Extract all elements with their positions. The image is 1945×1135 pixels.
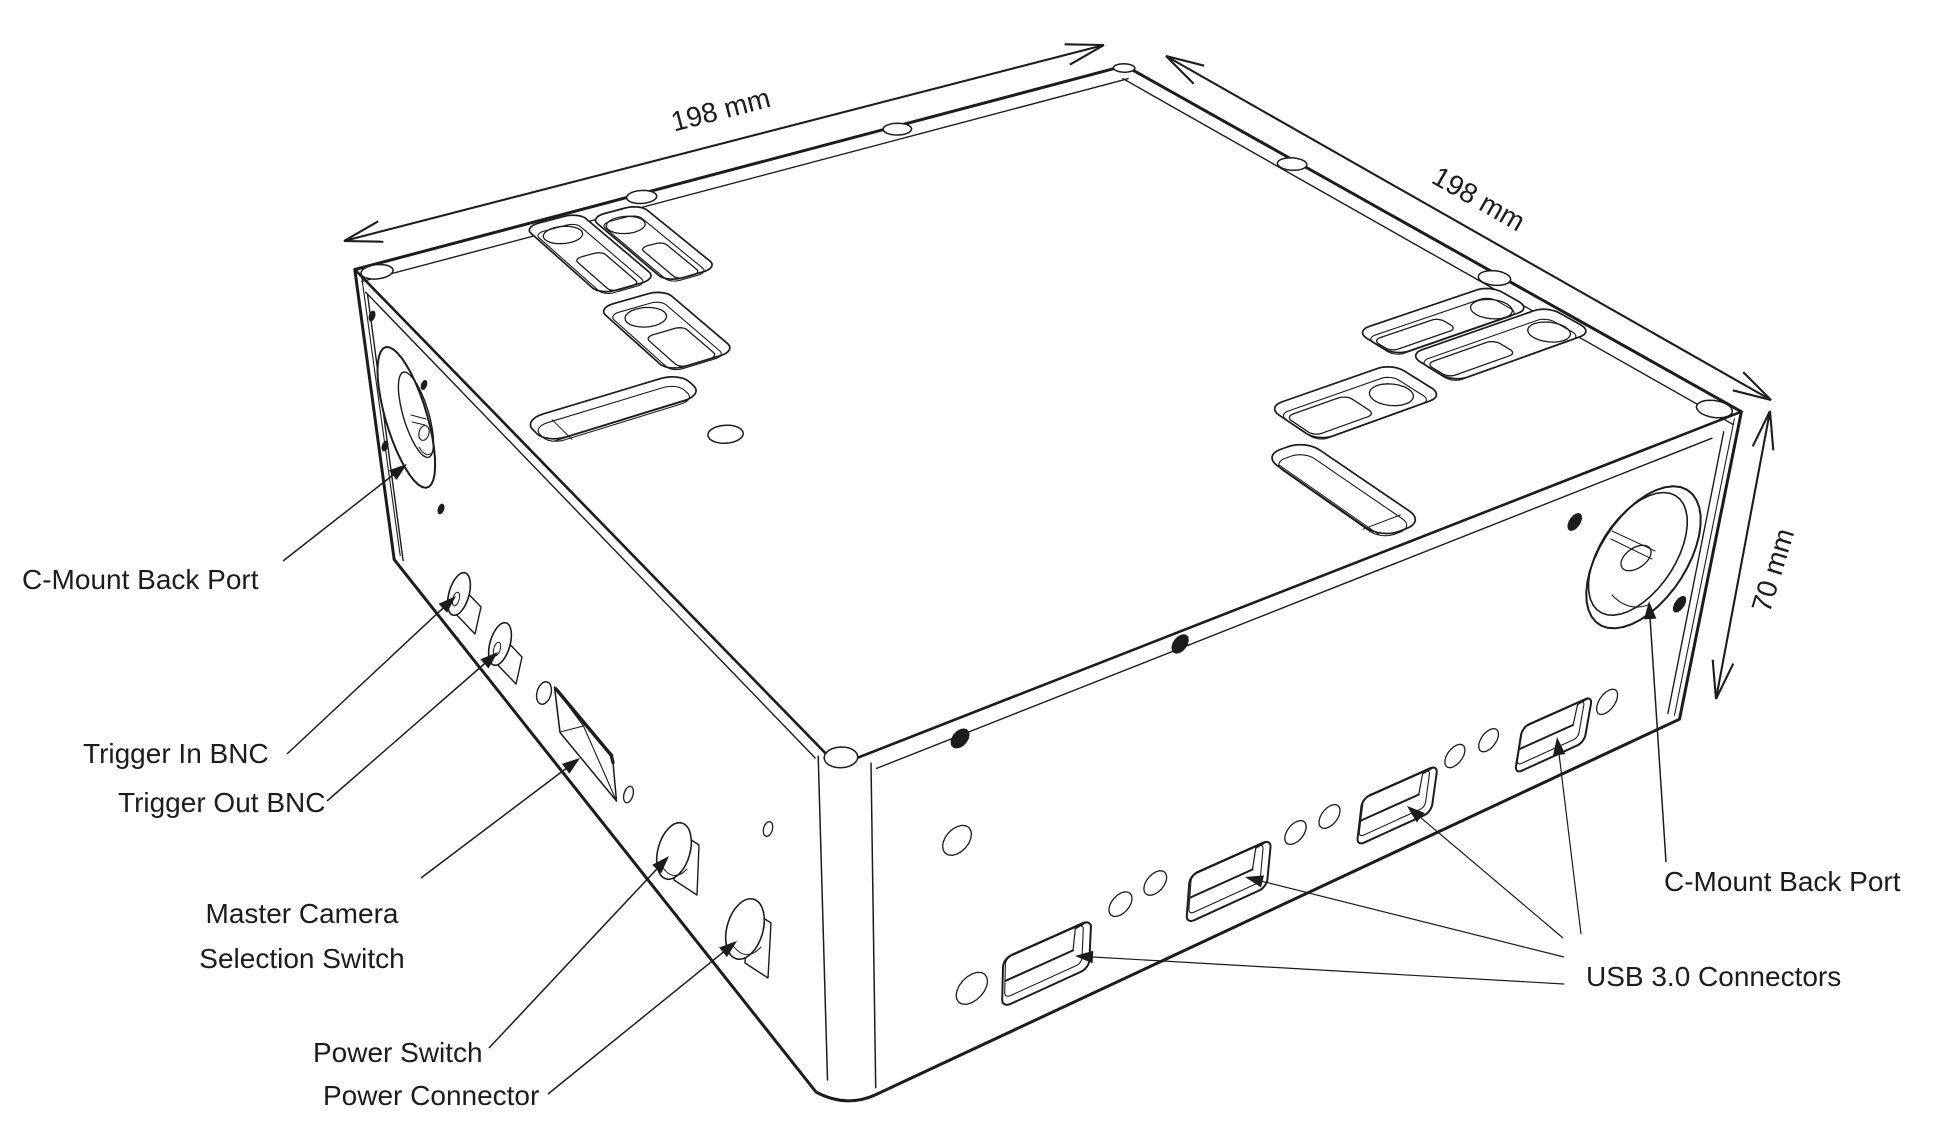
svg-text:C-Mount Back Port: C-Mount Back Port [1664, 866, 1901, 897]
svg-text:Trigger Out BNC: Trigger Out BNC [118, 787, 325, 818]
svg-text:Master Camera: Master Camera [206, 898, 399, 929]
svg-text:C-Mount Back Port: C-Mount Back Port [22, 564, 259, 595]
svg-text:Power Switch: Power Switch [313, 1037, 483, 1068]
svg-text:Power Connector: Power Connector [323, 1080, 539, 1111]
svg-text:USB 3.0 Connectors: USB 3.0 Connectors [1586, 961, 1841, 992]
svg-text:Selection Switch: Selection Switch [199, 943, 404, 974]
svg-text:Trigger In BNC: Trigger In BNC [83, 738, 269, 769]
